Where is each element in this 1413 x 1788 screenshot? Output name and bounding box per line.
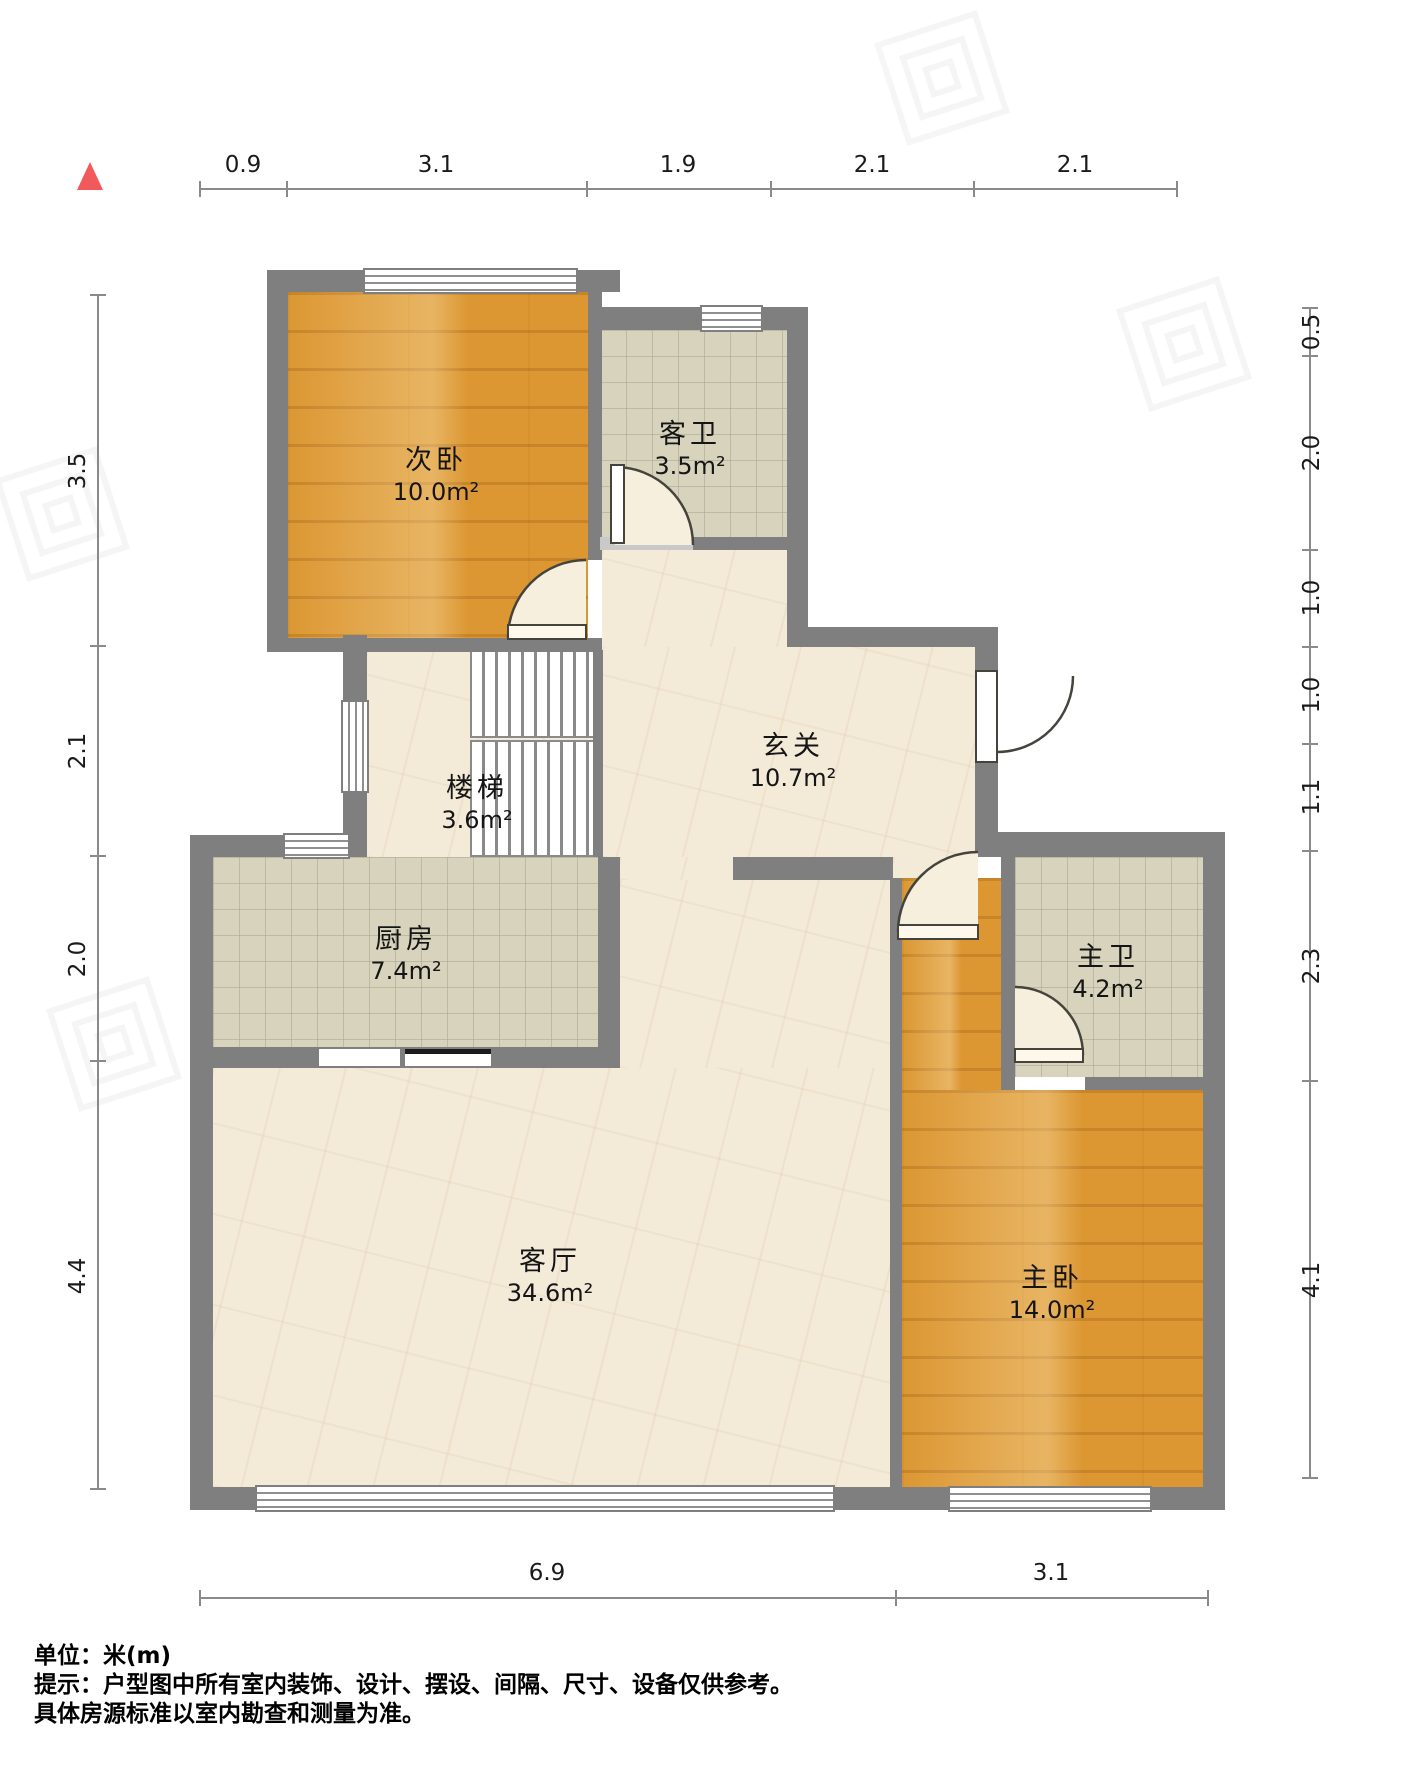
room-name: 玄关 (713, 730, 873, 763)
floor-master-corridor (902, 878, 1001, 1090)
dim-tick (90, 1060, 106, 1062)
room-name: 次卧 (356, 444, 516, 477)
window (700, 305, 763, 332)
room-area: 10.0m² (356, 477, 516, 507)
dim-label-top: 3.1 (406, 152, 466, 178)
dim-tick (1302, 1477, 1318, 1479)
dim-tick (1302, 743, 1318, 745)
dim-label-left: 2.0 (65, 929, 91, 989)
watermark-icon (874, 10, 1010, 146)
door-arc-icon (997, 676, 1073, 752)
dim-tick (1302, 646, 1318, 648)
dim-label-left: 2.1 (65, 721, 91, 781)
room-label-guest-bathroom: 客卫 3.5m² (610, 418, 770, 481)
kitchen-sliding-door (405, 1049, 491, 1066)
room-area: 10.7m² (713, 763, 873, 793)
room-label-stairs: 楼梯 3.6m² (397, 772, 557, 835)
room-area: 34.6m² (470, 1278, 630, 1308)
wall (733, 857, 893, 880)
dim-label-right: 1.0 (1299, 568, 1325, 628)
stairs-treads-upper (470, 650, 600, 738)
dim-tick (1302, 1080, 1318, 1082)
dim-tick (199, 1590, 201, 1606)
floor-doorway (893, 857, 975, 880)
dim-tick (586, 181, 588, 197)
dim-label-right: 0.5 (1299, 302, 1325, 362)
floor-plan-canvas: 次卧 10.0m² 客卫 3.5m² 玄关 10.7m² 楼梯 3.6m² 厨房… (0, 0, 1413, 1788)
wall (267, 638, 602, 652)
room-label-kitchen: 厨房 7.4m² (326, 923, 486, 986)
dim-label-left: 4.4 (65, 1246, 91, 1306)
door-leaf-icon (976, 671, 997, 762)
window (341, 700, 369, 793)
dim-tick (90, 1488, 106, 1490)
room-area: 14.0m² (972, 1295, 1132, 1325)
dim-label-bottom: 3.1 (1021, 1560, 1081, 1586)
dim-label-right: 2.0 (1299, 423, 1325, 483)
wall (1001, 857, 1015, 1090)
floor-hallway (602, 550, 787, 650)
footer-notes: 单位：米(m) 提示：户型图中所有室内装饰、设计、摆设、间隔、尺寸、设备仅供参考… (34, 1642, 793, 1729)
dim-label-right: 4.1 (1299, 1250, 1325, 1310)
room-name: 厨房 (326, 923, 486, 956)
room-label-master-bedroom: 主卧 14.0m² (972, 1262, 1132, 1325)
dim-label-top: 2.1 (1045, 152, 1105, 178)
dim-tick (90, 294, 106, 296)
wall (975, 763, 998, 832)
dim-tick (973, 181, 975, 197)
room-area: 3.6m² (397, 805, 557, 835)
kitchen-pass-opening (319, 1049, 400, 1066)
room-label-secondary-bedroom: 次卧 10.0m² (356, 444, 516, 507)
wall (588, 307, 700, 330)
window (255, 1485, 835, 1512)
watermark-icon (46, 976, 182, 1112)
dim-label-right: 2.3 (1299, 936, 1325, 996)
dim-tick (90, 855, 106, 857)
room-name: 客厅 (470, 1245, 630, 1278)
north-arrow-icon (77, 162, 103, 190)
wall (1203, 832, 1225, 1510)
dimension-line-top (199, 188, 1176, 190)
wall (975, 832, 1225, 857)
room-label-master-bathroom: 主卫 4.2m² (1028, 941, 1188, 1004)
wall (598, 857, 620, 1068)
room-area: 3.5m² (610, 451, 770, 481)
dim-tick (770, 181, 772, 197)
dim-label-right: 1.0 (1299, 665, 1325, 725)
dim-tick (1302, 549, 1318, 551)
room-name: 楼梯 (397, 772, 557, 805)
window (363, 268, 578, 294)
disclaimer-line2: 具体房源标准以室内勘查和测量为准。 (34, 1700, 793, 1729)
dim-label-top: 0.9 (213, 152, 273, 178)
dim-label-top: 1.9 (648, 152, 708, 178)
room-name: 主卫 (1028, 941, 1188, 974)
window (948, 1486, 1152, 1512)
wall (588, 292, 602, 560)
door-fan-icon (997, 676, 1073, 752)
wall (1085, 1077, 1203, 1090)
dim-tick (1176, 181, 1178, 197)
wall (267, 270, 288, 652)
wall (890, 878, 902, 1487)
room-name: 客卫 (610, 418, 770, 451)
dim-tick (199, 181, 201, 197)
wall (190, 835, 213, 1510)
dim-tick (895, 1590, 897, 1606)
room-area: 4.2m² (1028, 974, 1188, 1004)
disclaimer-line1: 提示：户型图中所有室内装饰、设计、摆设、间隔、尺寸、设备仅供参考。 (34, 1671, 793, 1700)
dim-tick (286, 181, 288, 197)
dim-tick (1302, 850, 1318, 852)
room-area: 7.4m² (326, 956, 486, 986)
floor-living-room (620, 880, 890, 1068)
room-name: 主卧 (972, 1262, 1132, 1295)
window (283, 833, 350, 859)
dim-tick (90, 645, 106, 647)
wall (693, 537, 808, 550)
dim-label-left: 3.5 (65, 441, 91, 501)
watermark-icon (1116, 276, 1252, 412)
dim-label-right: 1.1 (1299, 767, 1325, 827)
dimension-line-left (97, 294, 99, 1490)
floor-hallway (620, 857, 733, 880)
dim-tick (1207, 1590, 1209, 1606)
door-sill (600, 537, 693, 550)
wall (787, 627, 998, 647)
dim-label-bottom: 6.9 (517, 1560, 577, 1586)
unit-note: 单位：米(m) (34, 1642, 793, 1671)
wall-stairs-divider (593, 650, 603, 857)
room-label-living-room: 客厅 34.6m² (470, 1245, 630, 1308)
dimension-line-bottom (199, 1597, 1207, 1599)
room-label-entrance-hall: 玄关 10.7m² (713, 730, 873, 793)
wall (975, 647, 998, 675)
dim-label-top: 2.1 (842, 152, 902, 178)
wall (787, 307, 808, 647)
